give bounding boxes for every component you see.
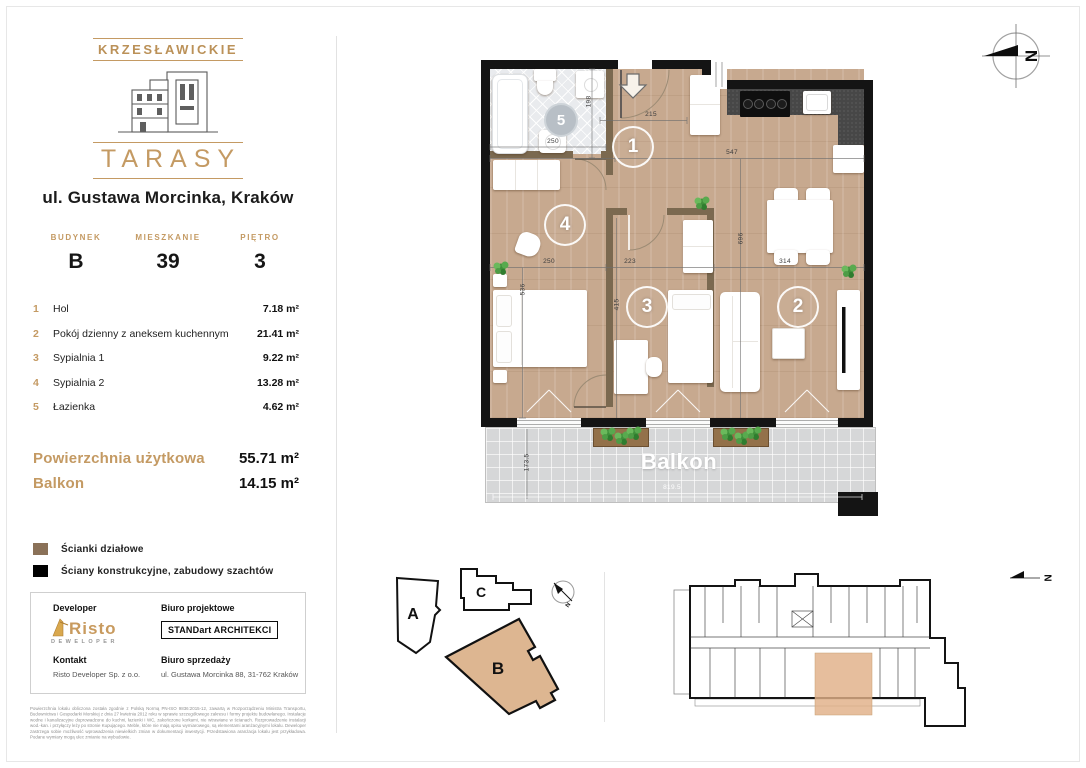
site-north-icon: N <box>552 581 574 608</box>
usable-area-value: 55.71 m² <box>239 450 299 467</box>
unit-apartment: MIESZKANIE 39 <box>122 233 214 274</box>
legend: Ścianki działoweŚciany konstrukcyjne, za… <box>33 538 313 582</box>
room-number-bathroom: 5 <box>544 103 578 137</box>
sales-office-value: ul. Gustawa Morcinka 88, 31-762 Kraków <box>161 670 298 679</box>
balcony-area-row: Balkon 14.15 m² <box>33 475 299 500</box>
legend-swatch <box>33 543 48 555</box>
floorplan-poster: KRZESŁAWICKIE <box>0 0 1086 768</box>
wall-segment <box>710 418 776 427</box>
brand-logo: KRZESŁAWICKIE <box>93 36 243 181</box>
toilet <box>534 69 556 81</box>
balcony-area-label: Balkon <box>33 475 239 492</box>
developer-logo: Risto DEWELOPER <box>51 617 151 645</box>
area-totals: Powierzchnia użytkowa 55.71 m² Balkon 14… <box>33 450 299 500</box>
dimension-label: 536 <box>520 275 527 305</box>
bathtub <box>492 74 528 154</box>
wall-segment <box>864 80 873 427</box>
room-list-item: 4Sypialnia 213.28 m² <box>33 377 299 402</box>
balcony-area-value: 14.15 m² <box>239 475 299 492</box>
wall-segment <box>581 418 646 427</box>
legend-item: Ścianki działowe <box>33 538 313 560</box>
unit-building: BUDYNEK B <box>30 233 122 274</box>
legend-label: Ściany konstrukcyjne, zabudowy szachtów <box>61 566 273 577</box>
wall-segment <box>481 60 618 69</box>
coffee-table <box>772 328 805 359</box>
dimension-label: 696 <box>738 224 745 254</box>
crane-icon <box>51 617 69 637</box>
north-letter: N <box>563 601 570 608</box>
logo-rule <box>93 60 243 61</box>
panel-divider <box>336 36 337 733</box>
logo-top-text: KRZESŁAWICKIE <box>93 41 243 58</box>
building-value: B <box>30 250 122 274</box>
developer-box: Developer Biuro projektowe Risto DEWELOP… <box>30 592 306 694</box>
building-label: BUDYNEK <box>30 233 122 242</box>
room-number-bedroom1: 3 <box>626 286 668 328</box>
site-plan: A C B N <box>380 558 610 738</box>
building-floor-plan <box>665 553 985 738</box>
dimension-label: 250 <box>529 258 569 265</box>
overview-north-icon: N <box>1005 563 1065 598</box>
balcony-label: Balkon <box>619 449 739 475</box>
usable-area-label: Powierzchnia użytkowa <box>33 450 239 467</box>
wall-segment <box>481 60 490 427</box>
cooktop <box>740 91 790 117</box>
sales-office-label: Biuro sprzedaży <box>161 655 231 665</box>
floor-value: 3 <box>214 250 306 274</box>
nightstand <box>493 370 507 383</box>
desk <box>614 340 648 394</box>
pillow <box>496 331 512 363</box>
building-c-label: C <box>476 584 486 600</box>
room-list-item: 2Pokój dzienny z aneksem kuchennym21.41 … <box>33 328 299 353</box>
usable-area-row: Powierzchnia użytkowa 55.71 m² <box>33 450 299 475</box>
tv-cabinet <box>837 290 860 390</box>
north-letter: N <box>1022 50 1041 62</box>
balcony-planter <box>713 428 769 447</box>
nightstand <box>493 274 507 287</box>
legal-disclaimer: Powierzchnia lokalu obliczona została zg… <box>30 706 306 740</box>
dining-chair <box>806 250 830 265</box>
dimension-label: 415 <box>614 290 621 320</box>
contact-label: Kontakt <box>53 655 87 665</box>
wardrobe <box>493 160 560 190</box>
partition-wall <box>606 208 613 407</box>
logo-bottom-text: TARASY <box>93 145 243 176</box>
dimension-label: 173.5 <box>524 446 531 480</box>
room-list-item: 1Hol7.18 m² <box>33 303 299 328</box>
wardrobe <box>683 220 713 273</box>
desk-chair <box>646 357 662 377</box>
logo-rule <box>93 142 243 143</box>
hall-wardrobe <box>690 75 720 135</box>
dimension-label: 223 <box>610 258 650 265</box>
dimension-label: 250 <box>533 138 573 145</box>
legend-swatch <box>33 565 48 577</box>
building-c-shape <box>461 569 531 610</box>
floor-label: PIĘTRO <box>214 233 306 242</box>
apartment-value: 39 <box>122 250 214 274</box>
logo-rule <box>93 178 243 179</box>
building-illustration-icon <box>110 64 226 140</box>
legend-label: Ścianki działowe <box>61 544 144 555</box>
building-a-label: A <box>407 606 419 623</box>
wall-segment <box>481 418 517 427</box>
room-number-living: 2 <box>777 286 819 328</box>
contact-value: Risto Developer Sp. z o.o. <box>53 670 140 679</box>
balcony-glazing <box>517 418 838 427</box>
balcony-planter <box>593 428 649 447</box>
room-list-item: 5Łazienka4.62 m² <box>33 401 299 426</box>
logo-rule <box>93 38 243 39</box>
pillow <box>496 295 512 327</box>
dimension-label: 547 <box>712 149 752 156</box>
wall-segment <box>838 418 873 427</box>
highlighted-apartment <box>815 653 872 715</box>
room-number-hall: 1 <box>612 126 654 168</box>
design-office-logo: STANDart ARCHITEKCI <box>161 621 278 639</box>
address-title: ul. Gustawa Morcinka, Kraków <box>0 188 336 208</box>
balcony-pillar <box>838 492 878 516</box>
dining-table <box>767 200 833 253</box>
dimension-label: 215 <box>631 111 671 118</box>
kitchen-counter <box>838 89 864 145</box>
north-letter: N <box>1041 574 1052 581</box>
legend-item: Ściany konstrukcyjne, zabudowy szachtów <box>33 560 313 582</box>
pillow <box>672 294 711 310</box>
kitchen-sink <box>803 91 831 114</box>
room-number-bedroom2: 4 <box>544 204 586 246</box>
unit-info: BUDYNEK B MIESZKANIE 39 PIĘTRO 3 <box>30 233 306 274</box>
unit-floor: PIĘTRO 3 <box>214 233 306 274</box>
developer-label: Developer <box>53 603 97 613</box>
dimension-label: 314 <box>765 258 805 265</box>
section-divider <box>604 572 605 722</box>
design-office-label: Biuro projektowe <box>161 603 235 613</box>
dimension-label: 819.5 <box>622 484 722 491</box>
room-list-item: 3Sypialnia 19.22 m² <box>33 352 299 377</box>
north-compass-icon: N <box>978 20 1054 96</box>
apartment-floorplan: 1 2 3 4 5 215 250 547 198 250 223 314 53… <box>481 60 873 522</box>
building-b-label: B <box>492 659 504 678</box>
fridge <box>833 145 864 173</box>
room-list: 1Hol7.18 m²2Pokój dzienny z aneksem kuch… <box>33 303 299 426</box>
partition-wall <box>606 208 627 215</box>
apartment-label: MIESZKANIE <box>122 233 214 242</box>
developer-logo-text: Risto <box>69 620 117 637</box>
partition-wall <box>606 158 613 175</box>
developer-logo-subtext: DEWELOPER <box>51 639 151 645</box>
sofa <box>720 292 760 392</box>
dimension-label: 198 <box>586 87 593 117</box>
wall-segment <box>727 80 873 89</box>
info-panel: KRZESŁAWICKIE <box>0 0 336 768</box>
